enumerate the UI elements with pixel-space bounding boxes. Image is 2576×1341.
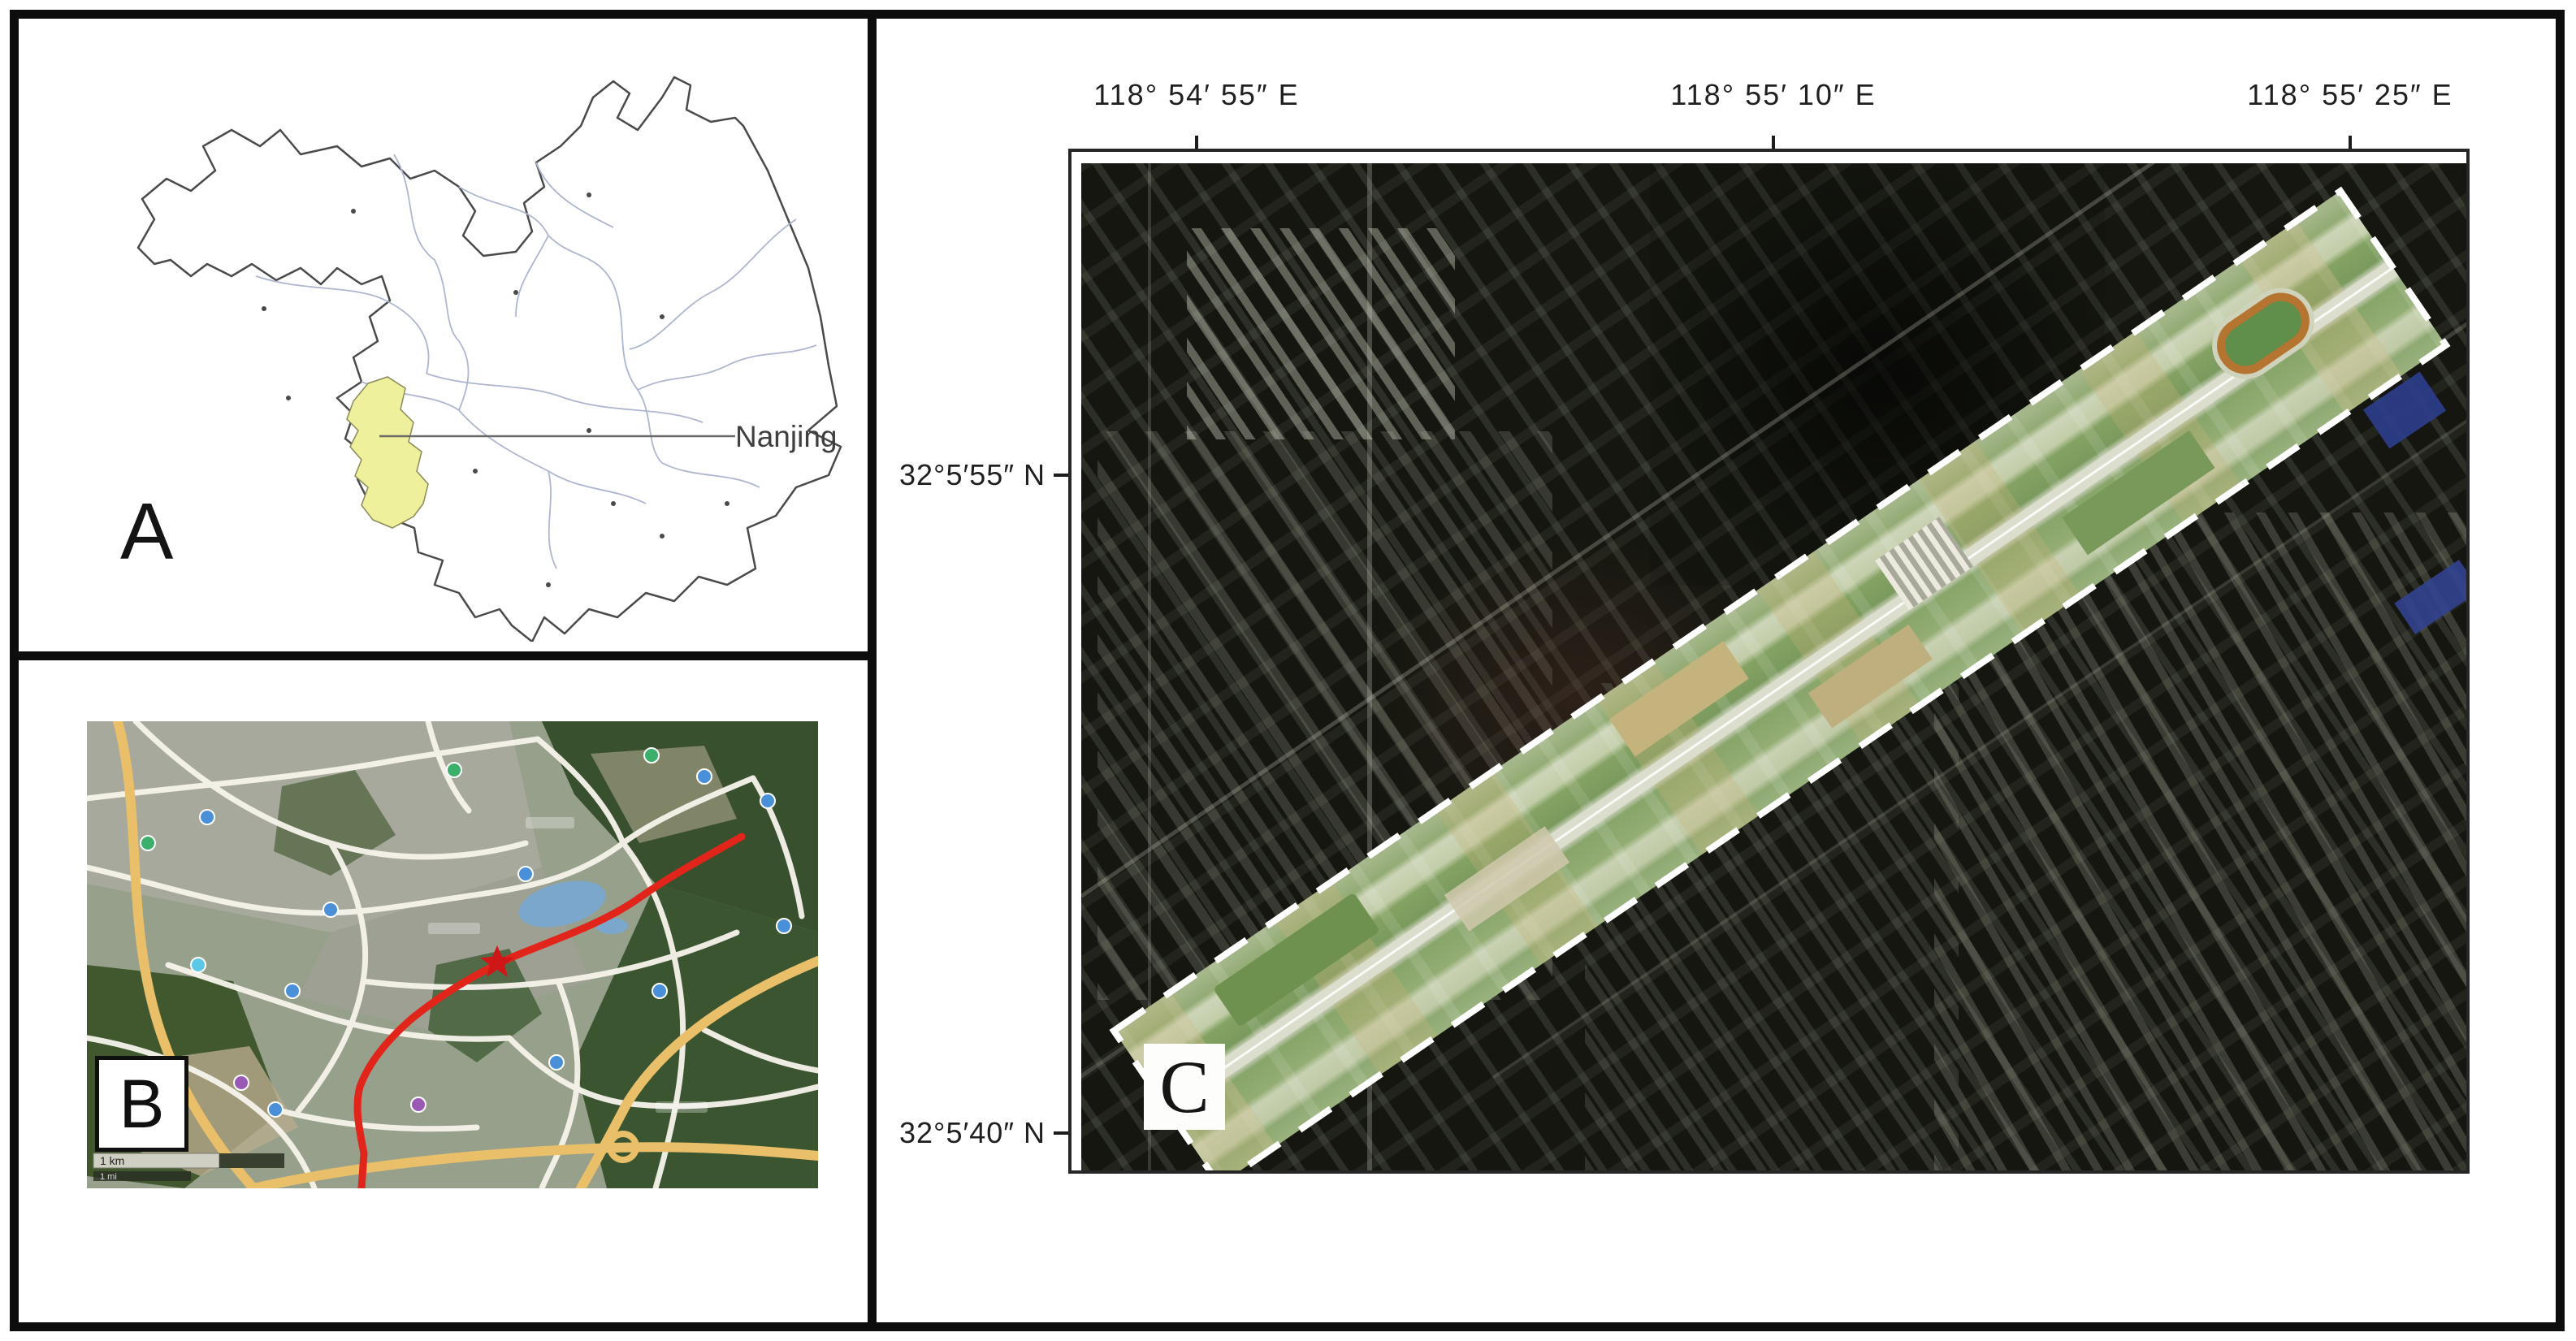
figure-border — [10, 10, 2565, 1331]
panel-divider-vertical — [868, 10, 877, 1331]
panel-c-letter-box: C — [1144, 1044, 1225, 1130]
panel-divider-horizontal — [10, 651, 877, 660]
location-map-figure: A Nanjing — [0, 0, 2576, 1341]
panel-c-letter: C — [1159, 1044, 1209, 1130]
